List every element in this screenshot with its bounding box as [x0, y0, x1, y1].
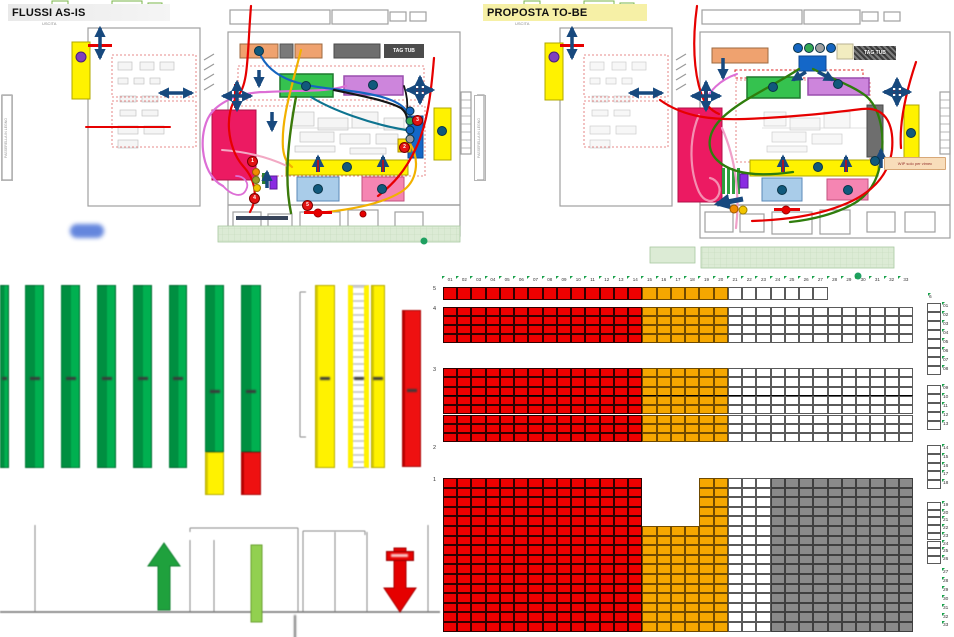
grid-cell: [742, 316, 756, 325]
grid-cell: [557, 603, 571, 613]
grid-cell: [828, 603, 842, 613]
grid-cell: [557, 584, 571, 594]
grid-cell: [443, 334, 457, 343]
grid-cell: [628, 574, 642, 584]
grid-cell: [671, 622, 685, 632]
grid-cell: [514, 387, 528, 396]
grid-cell: [657, 433, 671, 442]
grid-cell: [443, 603, 457, 613]
grid-cell: [714, 316, 728, 325]
grid-cell: [842, 584, 856, 594]
grid-cell: [685, 526, 699, 536]
grid-cell: [771, 593, 785, 603]
grid-cell: [642, 526, 656, 536]
sidebar-cell: [927, 348, 941, 357]
grid-cell: [614, 405, 628, 414]
grid-cell: [500, 334, 514, 343]
grid-cell: [443, 377, 457, 386]
grid-cell: [600, 307, 614, 316]
grid-cell: [771, 424, 785, 433]
warehouse-deco: [0, 275, 440, 637]
grid-cell: [642, 325, 656, 334]
grid-cell: [828, 612, 842, 622]
grid-cell: [471, 334, 485, 343]
grid-cell: [614, 574, 628, 584]
grid-cell: [457, 307, 471, 316]
grid-cell: [742, 396, 756, 405]
grid-cell: [457, 545, 471, 555]
grid-cell: [856, 334, 870, 343]
grid-cell: [856, 368, 870, 377]
grid-cell: [671, 433, 685, 442]
grid-cell: [899, 433, 913, 442]
grid-cell: [585, 316, 599, 325]
grid-cell: [813, 478, 827, 488]
grid-cell: [842, 307, 856, 316]
grid-cell: [842, 415, 856, 424]
grid-cell: [699, 526, 713, 536]
grid-cell: [771, 574, 785, 584]
grid-cell: [728, 488, 742, 498]
grid-cell: [585, 433, 599, 442]
sidebar-cell-label: 16: [943, 463, 948, 470]
grid-cell: [756, 316, 770, 325]
grid-cell: [471, 612, 485, 622]
grid-cell: [642, 603, 656, 613]
grid-cell: [528, 507, 542, 517]
grid-cell: [699, 603, 713, 613]
grid-cell: [614, 377, 628, 386]
grid-cell: [443, 424, 457, 433]
grid-cell: [714, 334, 728, 343]
grid-cell: [813, 316, 827, 325]
grid-cell: [571, 536, 585, 546]
grid-cell: [657, 526, 671, 536]
grid-cell: [685, 396, 699, 405]
grid-cell: [885, 574, 899, 584]
grid-cell: [899, 612, 913, 622]
grid-cell: [528, 574, 542, 584]
grid-cell: [614, 488, 628, 498]
grid-cell: [728, 368, 742, 377]
grid-cell: [642, 622, 656, 632]
grid-cell: [571, 377, 585, 386]
grid-cell: [543, 415, 557, 424]
grid-cell: [785, 593, 799, 603]
grid-cell: [685, 536, 699, 546]
grid-cell: [870, 612, 884, 622]
grid-cell: [756, 488, 770, 498]
flow-marker-1: 1: [247, 156, 258, 167]
grid-cell: [486, 555, 500, 565]
grid-cell: [671, 396, 685, 405]
grid-cell: [514, 545, 528, 555]
grid-cell: [571, 287, 585, 300]
grid-cell: [614, 424, 628, 433]
grid-cell: [571, 603, 585, 613]
grid-cell: [756, 415, 770, 424]
grid-cell: [785, 307, 799, 316]
grid-cell: [756, 603, 770, 613]
grid-cell: [457, 555, 471, 565]
grid-cell: [685, 584, 699, 594]
grid-cell: [756, 593, 770, 603]
grid-cell: [771, 488, 785, 498]
sidebar-cell-label: 14: [943, 445, 948, 452]
grid-cell: [614, 507, 628, 517]
sidebar-cell-label: 07: [943, 357, 948, 364]
grid-cell: [614, 396, 628, 405]
grid-cell: [585, 287, 599, 300]
grid-cell: [557, 526, 571, 536]
grid-cell: [514, 287, 528, 300]
grid-cell: [813, 396, 827, 405]
grid-cell: [571, 405, 585, 414]
grid-cell: [785, 287, 799, 300]
grid-cell: [628, 334, 642, 343]
grid-cell: [486, 334, 500, 343]
grid-cell: [500, 555, 514, 565]
grid-cell: [443, 612, 457, 622]
grid-cell: [799, 387, 813, 396]
grid-cell: [628, 433, 642, 442]
grid-cell: [671, 612, 685, 622]
grid-cell: [471, 574, 485, 584]
grid-cell: [443, 368, 457, 377]
grid-cell: [842, 516, 856, 526]
grid-cell: [614, 325, 628, 334]
grid-cell: [457, 584, 471, 594]
sidebar-cell-label: 10: [943, 394, 948, 401]
grid-cell: [699, 387, 713, 396]
grid-cell: [785, 396, 799, 405]
grid-cell: [514, 564, 528, 574]
grid-cell: [471, 478, 485, 488]
grid-cell: [671, 526, 685, 536]
grid-cell: [614, 368, 628, 377]
grid-cell: [600, 387, 614, 396]
grid-cell: [885, 424, 899, 433]
slide-canvas: FLUSSI AS-IS USCITA PASSERELLA IN LEGNO …: [0, 0, 954, 637]
grid-cell: [628, 507, 642, 517]
grid-cell: [528, 287, 542, 300]
grid-cell: [828, 593, 842, 603]
grid-cell: [614, 478, 628, 488]
grid-cell: [443, 564, 457, 574]
grid-cell: [514, 405, 528, 414]
grid-cell: [842, 564, 856, 574]
grid-cell: [799, 405, 813, 414]
grid-cell: [543, 507, 557, 517]
grid-cell: [742, 497, 756, 507]
grid-cell: [500, 507, 514, 517]
grid-cell: [528, 622, 542, 632]
grid-cell: [671, 377, 685, 386]
grid-cell: [728, 415, 742, 424]
grid-cell: [842, 545, 856, 555]
grid-cell: [528, 545, 542, 555]
grid-cell: [771, 415, 785, 424]
grid-cell: [828, 316, 842, 325]
grid-cell: [471, 405, 485, 414]
sidebar-cell-label: 06: [943, 348, 948, 355]
grid-cell: [514, 555, 528, 565]
grid-cell: [543, 478, 557, 488]
grid-cell: [870, 307, 884, 316]
grid-cell: [528, 478, 542, 488]
grid-cell: [457, 478, 471, 488]
grid-cell: [571, 488, 585, 498]
sidebar-cell-label: 32: [943, 614, 948, 621]
grid-cell: [742, 564, 756, 574]
grid-cell: [799, 478, 813, 488]
grid-cell: [799, 325, 813, 334]
grid-cell: [528, 424, 542, 433]
grid-cell: [543, 536, 557, 546]
grid-cell: [543, 424, 557, 433]
grid-cell: [828, 516, 842, 526]
grid-cell: [600, 584, 614, 594]
grid-cell: [471, 622, 485, 632]
grid-cell: [585, 593, 599, 603]
grid-cell: [870, 424, 884, 433]
grid-cell: [756, 622, 770, 632]
sidebar-cell: [927, 421, 941, 430]
grid-cell: [870, 497, 884, 507]
grid-cell: [771, 316, 785, 325]
grid-cell: [813, 536, 827, 546]
grid-cell: [457, 516, 471, 526]
grid-cell: [742, 545, 756, 555]
grid-cell: [699, 287, 713, 300]
to-be-side-label: PASSERELLA IN LEGNO: [474, 95, 486, 181]
grid-cell: [614, 287, 628, 300]
grid-cell: [899, 405, 913, 414]
grid-cell: [457, 424, 471, 433]
sidebar-cell-label: 17: [943, 471, 948, 478]
grid-cell: [585, 612, 599, 622]
grid-cell: [728, 478, 742, 488]
grid-cell: [828, 507, 842, 517]
grid-cell: [870, 478, 884, 488]
grid-cell: [585, 584, 599, 594]
grid-cell: [785, 612, 799, 622]
grid-cell: [600, 334, 614, 343]
grid-cell: [557, 564, 571, 574]
warehouse-diagram: [0, 275, 440, 637]
grid-cell: [742, 415, 756, 424]
grid-cell: [856, 488, 870, 498]
grid-cell: [628, 424, 642, 433]
grid-cell: [443, 287, 457, 300]
grid-cell: [571, 415, 585, 424]
grid-cell: [885, 368, 899, 377]
sidebar-cell: [927, 357, 941, 366]
grid-cell: [642, 415, 656, 424]
grid-cell: [671, 405, 685, 414]
grid-cell: [585, 488, 599, 498]
grid-cell: [600, 488, 614, 498]
grid-cell: [671, 593, 685, 603]
grid-cell: [628, 307, 642, 316]
grid-cell: [728, 334, 742, 343]
grid-cell: [528, 612, 542, 622]
grid-cell: [671, 574, 685, 584]
grid-cell: [870, 325, 884, 334]
as-is-side-label: PASSERELLA IN LEGNO: [1, 95, 13, 181]
grid-cell: [585, 574, 599, 584]
grid-cell: [585, 497, 599, 507]
grid-cell: [799, 612, 813, 622]
grid-cell: [628, 593, 642, 603]
grid-cell: [600, 612, 614, 622]
grid-cell: [657, 405, 671, 414]
grid-cell: [699, 516, 713, 526]
grid-cell: [685, 555, 699, 565]
grid-cell: [842, 526, 856, 536]
grid-cell: [585, 603, 599, 613]
grid-cell: [813, 325, 827, 334]
grid-cell: [543, 488, 557, 498]
grid-cell: [528, 584, 542, 594]
grid-cell: [756, 584, 770, 594]
grid-cell: [471, 497, 485, 507]
grid-cell: [443, 526, 457, 536]
grid-cell: [756, 368, 770, 377]
grid-cell: [813, 612, 827, 622]
grid-cell: [557, 622, 571, 632]
grid-cell: [657, 612, 671, 622]
grid-cell: [443, 516, 457, 526]
grid-cell: [842, 574, 856, 584]
grid-cell: [628, 555, 642, 565]
grid-cell: [671, 415, 685, 424]
grid-cell: [443, 622, 457, 632]
grid-cell: [856, 424, 870, 433]
grid-cell: [543, 377, 557, 386]
grid-cell: [813, 307, 827, 316]
grid-cell: [699, 612, 713, 622]
grid-cell: [799, 433, 813, 442]
grid-cell: [585, 555, 599, 565]
grid-cell: [813, 387, 827, 396]
grid-cell: [756, 377, 770, 386]
grid-cell: [443, 574, 457, 584]
grid-cell: [657, 396, 671, 405]
grid-cell: [585, 377, 599, 386]
grid-cell: [771, 516, 785, 526]
grid-cell: [657, 316, 671, 325]
grid-cell: [699, 307, 713, 316]
grid-cell: [828, 555, 842, 565]
grid-cell: [528, 396, 542, 405]
red-tag: [386, 551, 414, 561]
sidebar-cell: [927, 533, 941, 541]
grid-cell: [642, 564, 656, 574]
grid-cell: [842, 368, 856, 377]
grid-cell: [514, 622, 528, 632]
grid-cell: [642, 396, 656, 405]
grid-cell: [828, 334, 842, 343]
grid-cell: [856, 516, 870, 526]
grid-cell: [799, 536, 813, 546]
grid-cell: [614, 584, 628, 594]
grid-cell: [528, 497, 542, 507]
grid-cell: [714, 497, 728, 507]
grid-cell: [642, 377, 656, 386]
grid-cell: [742, 603, 756, 613]
sidebar-cell-label: 18: [943, 480, 948, 487]
grid-cell: [799, 516, 813, 526]
grid-cell: [756, 433, 770, 442]
grid-cell: [486, 564, 500, 574]
label-smudge: [294, 615, 296, 637]
grid-cell: [728, 536, 742, 546]
grid-cell: [500, 287, 514, 300]
grid-cell: [728, 526, 742, 536]
grid-cell: [728, 593, 742, 603]
grid-cell: [443, 433, 457, 442]
grid-cell: [500, 405, 514, 414]
grid-cell: [471, 545, 485, 555]
grid-cell: [543, 316, 557, 325]
grid-cell: [628, 526, 642, 536]
grid-cell: [813, 488, 827, 498]
sidebar-cell-label: 20: [943, 510, 948, 517]
grid-cell: [614, 622, 628, 632]
grid-cell: [828, 387, 842, 396]
grid-cell: [785, 545, 799, 555]
grid-cell: [528, 316, 542, 325]
green-lane-bar: [251, 545, 262, 622]
sidebar-cell: [927, 454, 941, 463]
grid-cell: [600, 516, 614, 526]
grid-cell: [543, 334, 557, 343]
grid-cell: [514, 424, 528, 433]
grid-cell: [471, 507, 485, 517]
grid-cell: [714, 584, 728, 594]
grid-cell: [870, 536, 884, 546]
grid-cell: [614, 526, 628, 536]
grid-cell: [614, 334, 628, 343]
grid-cell: [642, 593, 656, 603]
as-is-grass: [218, 226, 460, 245]
grid-cell: [856, 377, 870, 386]
grid-cell: [771, 584, 785, 594]
grid-cell: [671, 603, 685, 613]
grid-cell: [742, 387, 756, 396]
grid-cell: [543, 405, 557, 414]
wip-label: WIP solo per vimec: [884, 157, 946, 170]
grid-cell: [657, 622, 671, 632]
grid-cell: [628, 377, 642, 386]
grid-cell: [885, 488, 899, 498]
grid-cell: [742, 307, 756, 316]
grid-cell: [685, 622, 699, 632]
grid-cell: [471, 307, 485, 316]
grid-cell: [885, 478, 899, 488]
grid-cell: [885, 396, 899, 405]
grid-cell: [742, 368, 756, 377]
grid-cell: [543, 325, 557, 334]
grid-cell: [528, 307, 542, 316]
grid-cell: [614, 415, 628, 424]
grid-cell: [514, 603, 528, 613]
sidebar-cell: [927, 471, 941, 480]
grid-cell: [471, 368, 485, 377]
grid-cell: [699, 593, 713, 603]
grid-cell: [443, 545, 457, 555]
